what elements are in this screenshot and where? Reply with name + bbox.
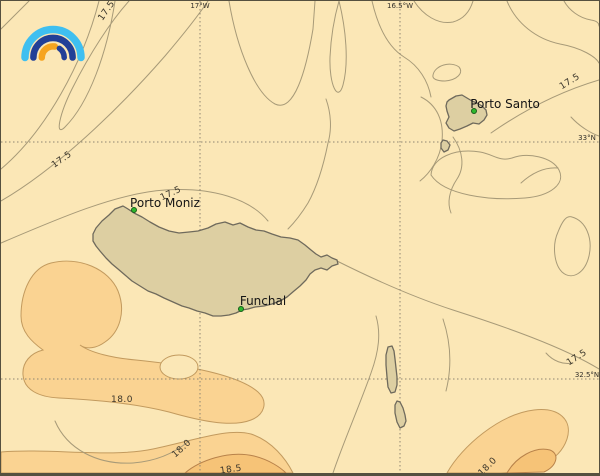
place-marker-porto-santo [471, 108, 477, 114]
logo-arc-inner-left [42, 46, 55, 57]
desertas-island-south [395, 401, 406, 428]
isotherm-contours [1, 1, 599, 473]
porto-santo-islet [441, 140, 450, 152]
map-graphics [1, 1, 599, 473]
place-marker-funchal [238, 306, 244, 312]
madeira-island [93, 206, 338, 316]
meridian-label-16-5-w: 16.5°W [387, 2, 413, 10]
cool-eye-in-warm-band [160, 355, 198, 379]
place-marker-porto-moniz [131, 207, 137, 213]
graticule-grid [1, 1, 599, 473]
logo-arc-inner-right [59, 48, 64, 57]
place-label-porto-moniz: Porto Moniz [130, 196, 200, 210]
parallel-label-33-n: 33°N [578, 134, 596, 142]
parallel-label-32-5-n: 32.5°N [575, 371, 599, 379]
place-label-porto-santo: Porto Santo [470, 97, 540, 111]
rainbow-logo-icon [9, 9, 97, 65]
desertas-island-north [386, 346, 397, 393]
meridian-label-17-w: 17°W [190, 2, 209, 10]
isotherm-label-18-0: 18.0 [111, 395, 133, 405]
place-label-funchal: Funchal [240, 294, 286, 308]
weather-map-canvas[interactable]: 17.517.517.517.517.518.018.018.018.5 Por… [0, 0, 600, 476]
isotherm-label-18-5: 18.5 [219, 464, 242, 476]
